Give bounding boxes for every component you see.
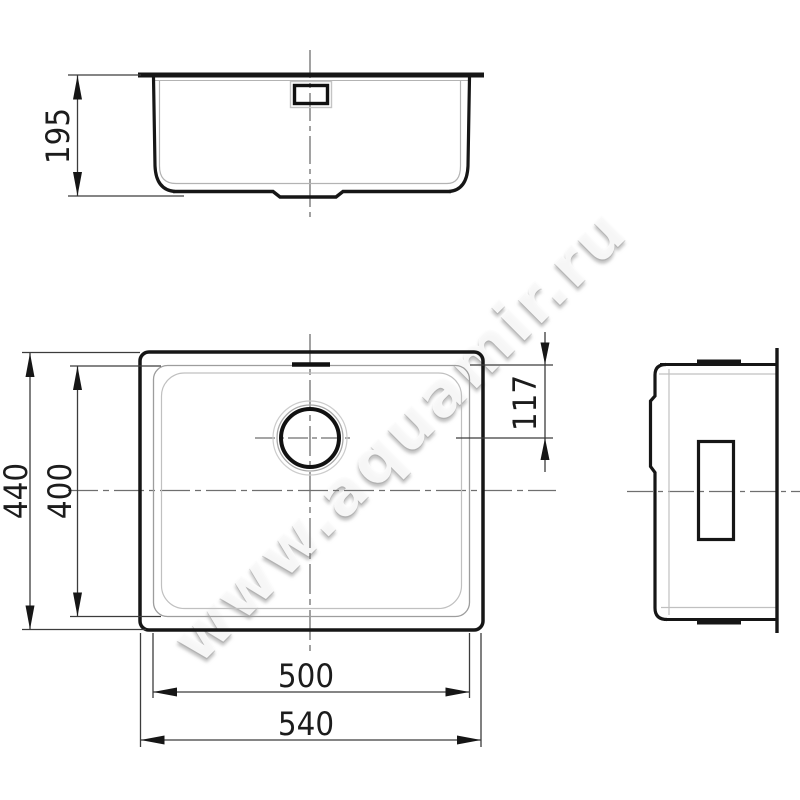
overflow-hole: [295, 86, 328, 104]
front-view: [138, 50, 484, 218]
arrowhead: [446, 688, 470, 697]
arrowhead: [457, 736, 481, 745]
arrowhead: [153, 688, 177, 697]
arrowhead: [73, 172, 82, 196]
side-view: [627, 348, 800, 633]
arrowhead: [141, 736, 165, 745]
drawing-linework: [0, 0, 800, 800]
dimension-195: [68, 75, 184, 196]
arrowhead: [73, 593, 82, 617]
dim-label-drain-offset: 117: [509, 375, 541, 431]
arrowhead: [26, 606, 35, 630]
dim-label-front-height: 195: [42, 108, 74, 164]
arrowhead: [73, 76, 82, 100]
side-drain-body: [699, 442, 734, 540]
dim-label-inner-depth: 400: [44, 463, 76, 519]
plan-view: [68, 334, 556, 651]
dim-label-inner-width: 500: [278, 660, 334, 692]
arrowhead: [541, 343, 550, 365]
dim-label-outer-width: 540: [278, 708, 334, 740]
dim-label-outer-depth: 440: [0, 463, 32, 519]
technical-drawing-sink: www.aquamir.ru: [0, 0, 800, 800]
front-bottom: [173, 192, 451, 198]
dimensions: [22, 75, 553, 747]
arrowhead: [541, 438, 550, 460]
arrowhead: [26, 353, 35, 377]
dimension-400: [70, 366, 161, 617]
arrowhead: [73, 366, 82, 390]
front-left-wall: [154, 78, 176, 192]
